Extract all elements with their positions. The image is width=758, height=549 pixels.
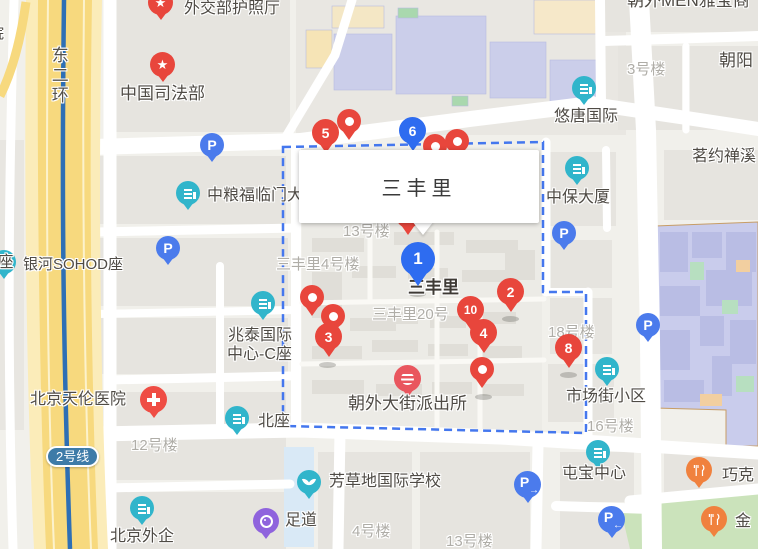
- label-zhaotai-line1: 兆泰国际: [228, 327, 292, 345]
- label-c-block: C座: [0, 254, 14, 272]
- building-icon: [259, 297, 267, 309]
- police-badge-icon: [401, 372, 414, 385]
- label-passport-hall: 外交部护照厅: [184, 0, 280, 18]
- fork-knife-icon: [693, 464, 706, 477]
- parking-marker-3[interactable]: P: [552, 221, 576, 245]
- arrow-left-icon: ←: [613, 521, 623, 531]
- label-sanfengli-20: 三丰里20号: [372, 307, 449, 324]
- leaf-icon: [302, 476, 316, 489]
- marker-6[interactable]: 6: [399, 117, 426, 144]
- label-ministry-justice: 中国司法部: [120, 85, 205, 104]
- label-building-13-upper: 13号楼: [343, 224, 390, 241]
- poi-cofco-fulinmen[interactable]: [176, 181, 200, 205]
- pin-shadow: [560, 372, 577, 378]
- label-market-street: 市场街小区: [566, 388, 646, 406]
- poi-tianlun-hospital[interactable]: [140, 386, 167, 413]
- info-window[interactable]: 三丰里: [299, 150, 539, 223]
- marker-4[interactable]: 4: [470, 319, 497, 346]
- building-icon: [603, 363, 611, 375]
- poi-market-street[interactable]: [595, 357, 619, 381]
- label-tianlun-hospital: 北京天伦医院: [30, 391, 126, 409]
- building-icon: [138, 502, 146, 514]
- marker-1[interactable]: 1: [401, 242, 435, 276]
- label-police-station: 朝外大街派出所: [348, 395, 467, 414]
- star-icon: ★: [157, 58, 169, 71]
- label-chaowai-men: 朝外MEN雅宝商: [627, 0, 750, 11]
- hospital-cross-icon: [147, 393, 160, 406]
- poi-restaurant-qiaoke[interactable]: [686, 457, 712, 483]
- marker-8[interactable]: 8: [555, 334, 582, 361]
- marker-number: 2: [507, 284, 515, 300]
- label-building-3-top: 3号楼: [627, 62, 665, 79]
- parking-icon: P: [643, 318, 652, 332]
- poi-beijing-fesco[interactable]: [130, 496, 154, 520]
- parking-icon: P: [559, 226, 568, 240]
- label-qiaoke: 巧克: [722, 467, 754, 485]
- label-east-2nd-ring: 东二环: [48, 46, 67, 106]
- label-galaxy-soho-d: 银河SOHOD座: [23, 257, 123, 274]
- marker-number: 4: [480, 325, 488, 341]
- pin-shadow: [319, 362, 336, 368]
- building-icon: [580, 82, 588, 94]
- label-building-13-bottom: 13号楼: [446, 534, 493, 549]
- parking-icon: P: [163, 241, 172, 255]
- marker-number: 3: [325, 329, 333, 345]
- poi-north-block[interactable]: [225, 406, 249, 430]
- poi-restaurant-jin[interactable]: [701, 506, 727, 532]
- marker-number: 1: [413, 249, 422, 269]
- star-icon: ★: [155, 0, 167, 9]
- parking-icon: P: [520, 475, 529, 489]
- marker-5[interactable]: 5: [312, 119, 339, 146]
- poi-police-station[interactable]: [394, 365, 421, 392]
- poi-zhongbao[interactable]: [565, 156, 589, 180]
- foot-massage-icon: [260, 515, 273, 528]
- building-icon: [594, 446, 602, 458]
- label-building-4-bottom: 4号楼: [352, 524, 390, 541]
- label-jin: 金: [735, 513, 751, 531]
- dot-icon: [308, 293, 317, 302]
- parking-icon: P: [604, 510, 613, 524]
- label-partial-left: 院: [0, 26, 4, 43]
- map-base: [0, 0, 758, 549]
- building-icon: [233, 412, 241, 424]
- poi-fangcaodi-school[interactable]: [297, 470, 321, 494]
- poi-tunbao[interactable]: [586, 440, 610, 464]
- parking-marker-1[interactable]: P: [200, 133, 224, 157]
- label-sanfengli-4: 三丰里4号楼: [276, 257, 359, 274]
- fork-knife-icon: [708, 513, 721, 526]
- parking-icon: P: [207, 138, 216, 152]
- dot-icon: [478, 365, 487, 374]
- label-fangcaodi-school: 芳草地国际学校: [329, 473, 441, 491]
- info-window-callout: [412, 221, 434, 235]
- pin-shadow: [502, 316, 519, 322]
- label-building-16: 16号楼: [587, 419, 634, 436]
- building-icon: [573, 162, 581, 174]
- parking-marker-4[interactable]: P: [636, 313, 660, 337]
- poi-youtang[interactable]: [572, 76, 596, 100]
- marker-number: 8: [565, 340, 573, 356]
- result-pin-dot-6[interactable]: [470, 357, 494, 381]
- label-north-block: 北座: [258, 413, 290, 431]
- marker-number: 5: [322, 125, 330, 141]
- label-beijing-fesco: 北京外企: [110, 528, 174, 546]
- parking-marker-2[interactable]: P: [156, 236, 180, 260]
- result-pin-dot-5[interactable]: [300, 285, 324, 309]
- arrow-right-icon: →: [529, 486, 539, 496]
- star-poi-ministry-justice[interactable]: ★: [150, 52, 175, 77]
- label-youtang-intl: 悠唐国际: [554, 108, 618, 126]
- label-mingyue-chanxi: 茗约禅溪: [692, 148, 756, 166]
- building-icon: [184, 187, 192, 199]
- map-canvas[interactable]: 3号楼 13号楼 三丰里4号楼 三丰里20号 18号楼 16号楼 12号楼 4号…: [0, 0, 758, 549]
- label-foot-spa: 足道: [285, 512, 317, 530]
- marker-number: 10: [464, 303, 477, 317]
- pin-shadow: [475, 394, 492, 400]
- metro-line2-badge: 2号线: [46, 446, 99, 467]
- dot-icon: [345, 117, 354, 126]
- parking-entrance-left[interactable]: P ←: [598, 506, 625, 533]
- dot-icon: [329, 312, 338, 321]
- result-pin-dot-1[interactable]: [337, 109, 361, 133]
- marker-3[interactable]: 3: [315, 323, 342, 350]
- marker-2[interactable]: 2: [497, 278, 524, 305]
- label-building-12: 12号楼: [131, 438, 178, 455]
- label-chaoyang: 朝阳: [719, 52, 753, 71]
- parking-entrance-right[interactable]: P →: [514, 471, 541, 498]
- marker-number: 6: [409, 123, 417, 139]
- poi-zhaotai[interactable]: [251, 291, 275, 315]
- label-tunbao-center: 屯宝中心: [562, 465, 626, 483]
- info-window-title: 三丰里: [382, 172, 457, 201]
- label-zhaotai-line2: 中心-C座: [227, 346, 292, 364]
- dot-icon: [453, 137, 462, 146]
- poi-foot-spa[interactable]: [253, 508, 279, 534]
- label-zhongbao-tower: 中保大厦: [546, 189, 610, 207]
